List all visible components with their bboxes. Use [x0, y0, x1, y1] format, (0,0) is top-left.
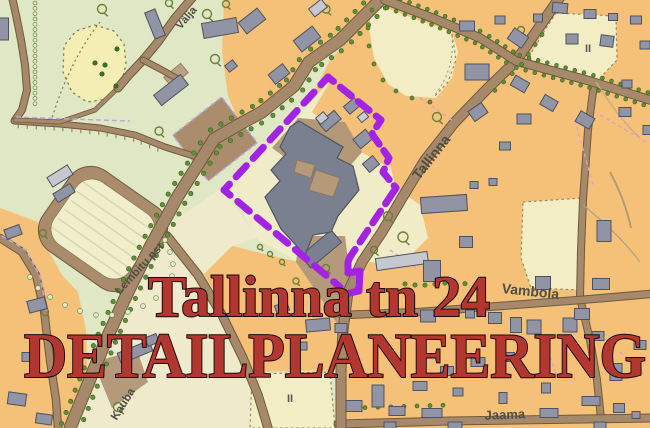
svg-text:II: II: [287, 393, 293, 405]
svg-text:II: II: [585, 43, 591, 55]
svg-text:DETAILPLANEERING: DETAILPLANEERING: [24, 320, 646, 391]
svg-text:Jaama: Jaama: [484, 406, 526, 422]
